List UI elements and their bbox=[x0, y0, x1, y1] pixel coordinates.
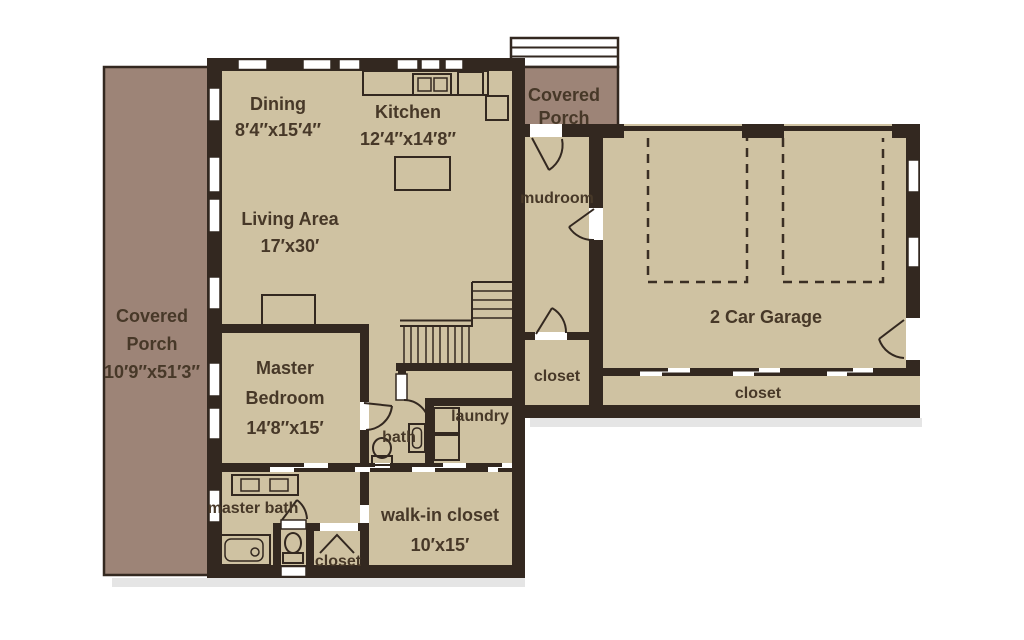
label-left-porch-1: Covered bbox=[116, 306, 188, 326]
room-label-master-2: Bedroom bbox=[245, 388, 324, 408]
room-label-master-1: Master bbox=[256, 358, 314, 378]
room-dims-master: 14′8″x15′ bbox=[246, 418, 323, 438]
label-entry-porch-1: Covered bbox=[528, 85, 600, 105]
label-entry-porch-2: Porch bbox=[538, 108, 589, 128]
room-label-master-bath: master bath bbox=[208, 500, 299, 517]
room-label-laundry: laundry bbox=[451, 408, 509, 425]
room-label-mudroom: mudroom bbox=[520, 190, 594, 207]
entry-steps bbox=[511, 38, 618, 67]
garage-closet-bypass-doors bbox=[640, 368, 873, 376]
room-dims-walkin: 10′x15′ bbox=[411, 535, 470, 555]
label-left-porch-2: Porch bbox=[126, 334, 177, 354]
room-label-bath: bath bbox=[382, 429, 416, 446]
laundry-pocket-door bbox=[412, 463, 466, 472]
room-dims-kitchen: 12′4″x14′8″ bbox=[360, 129, 456, 149]
room-label-dining: Dining bbox=[250, 94, 306, 114]
room-label-walkin: walk-in closet bbox=[380, 505, 499, 525]
room-dims-living: 17′x30′ bbox=[261, 236, 320, 256]
floor-plan: Dining 8′4″x15′4″ Kitchen 12′4″x14′8″ Co… bbox=[0, 0, 1024, 640]
room-label-hall-closet: closet bbox=[534, 368, 581, 385]
master-bath-pocket-door bbox=[270, 463, 328, 472]
room-label-garage-closet: closet bbox=[735, 385, 782, 402]
room-dims-dining: 8′4″x15′4″ bbox=[235, 120, 321, 140]
walkin-closet-opening bbox=[360, 505, 369, 523]
room-label-kitchen: Kitchen bbox=[375, 102, 441, 122]
hall-pocket-door bbox=[488, 463, 512, 472]
room-label-living: Living Area bbox=[241, 209, 339, 229]
label-left-porch-dims: 10′9″x51′3″ bbox=[104, 362, 200, 382]
floor-plan-page: Dining 8′4″x15′4″ Kitchen 12′4″x14′8″ Co… bbox=[0, 0, 1024, 640]
room-label-garage: 2 Car Garage bbox=[710, 307, 822, 327]
room-label-small-closet: closet bbox=[315, 553, 362, 570]
